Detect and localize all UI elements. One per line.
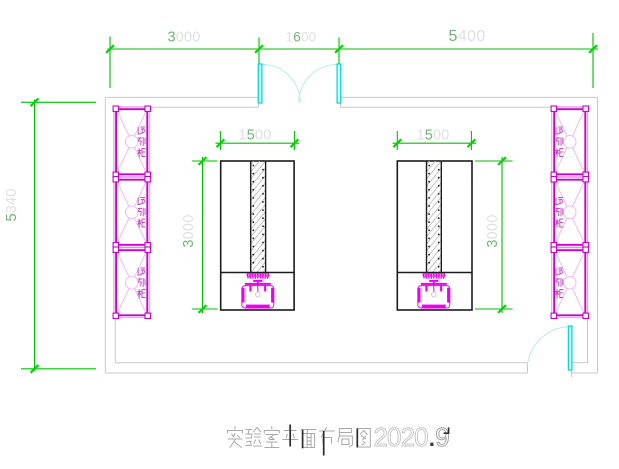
svg-text:3000: 3000 (181, 215, 197, 248)
svg-text:5340: 5340 (4, 188, 20, 221)
svg-text:5400: 5400 (449, 28, 486, 45)
svg-text:1600: 1600 (286, 30, 317, 45)
svg-text:1500: 1500 (239, 127, 272, 143)
svg-text:3000: 3000 (168, 30, 201, 46)
svg-text:3000: 3000 (485, 215, 501, 248)
svg-text:9: 9 (435, 422, 449, 452)
svg-text:2020: 2020 (374, 422, 429, 452)
svg-text:1500: 1500 (417, 127, 450, 143)
